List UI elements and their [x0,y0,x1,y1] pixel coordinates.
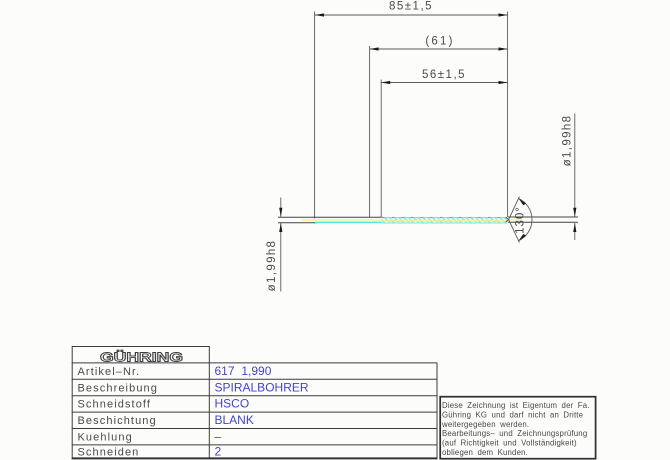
svg-text:(61): (61) [425,36,454,48]
svg-text:Beschichtung: Beschichtung [78,415,157,427]
svg-text:617 1,990: 617 1,990 [215,364,272,378]
svg-text:130°: 130° [515,206,527,234]
svg-text:ø1,99h8: ø1,99h8 [266,240,278,292]
svg-text:85±1,5: 85±1,5 [389,1,433,13]
svg-text:(auf Richtigkeit und Vollständ: (auf Richtigkeit und Vollständigkeit) [442,439,577,448]
svg-text:Bearbeitungs– und Zeichnungspr: Bearbeitungs– und Zeichnungsprüfung [442,429,587,438]
svg-text:Schneiden: Schneiden [78,447,140,459]
svg-text:BLANK: BLANK [215,413,254,427]
svg-text:SPIRALBOHRER: SPIRALBOHRER [215,380,309,394]
svg-text:GÜHRING: GÜHRING [100,349,183,364]
svg-text:–: – [215,430,222,444]
svg-text:Gühring KG und darf nicht an D: Gühring KG und darf nicht an Dritte [442,410,583,419]
svg-text:Beschreibung: Beschreibung [78,382,158,394]
svg-text:Kuehlung: Kuehlung [78,432,133,444]
svg-text:56±1,5: 56±1,5 [422,69,466,81]
svg-text:Schneidstoff: Schneidstoff [78,399,152,411]
svg-text:HSCO: HSCO [215,397,250,411]
svg-text:obliegen dem Kunden.: obliegen dem Kunden. [442,448,528,457]
svg-text:Diese Zeichnung ist Eigentum d: Diese Zeichnung ist Eigentum der Fa. [442,401,590,410]
svg-text:Artikel–Nr.: Artikel–Nr. [78,366,141,378]
svg-text:ø1,99h8: ø1,99h8 [562,115,574,167]
svg-text:2: 2 [215,445,222,459]
svg-text:weitergegeben werden.: weitergegeben werden. [441,420,529,429]
